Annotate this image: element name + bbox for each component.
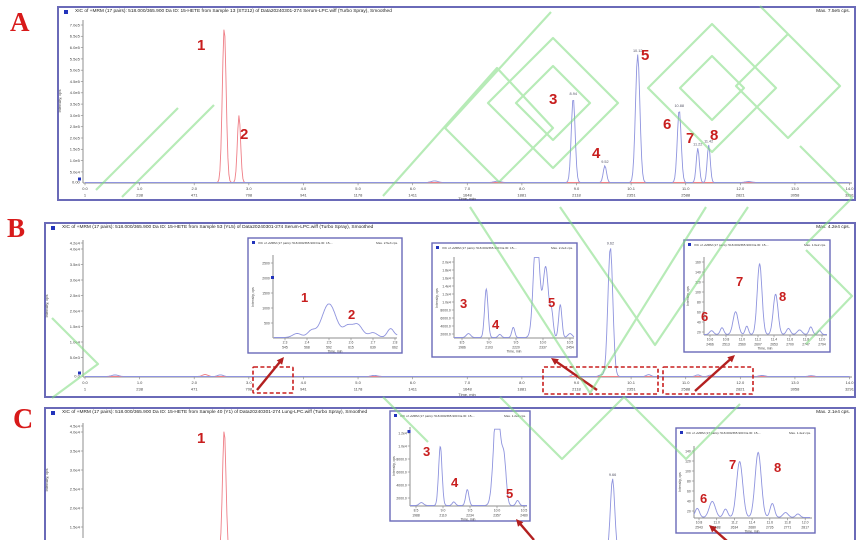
- peak-number: 7: [686, 130, 694, 147]
- inset-window-icon: [688, 243, 691, 246]
- x-tick-time-label: 3.0: [246, 186, 252, 191]
- x-tick-scan-label: 568: [304, 345, 310, 349]
- inset-max-label: Max. 1.2e4 cps.: [504, 414, 526, 418]
- x-tick-time-label: 11.8: [803, 337, 809, 341]
- y-tick-label: 6000.0: [396, 470, 406, 474]
- inset-window-icon: [252, 241, 255, 244]
- y-tick-label: 1.4e4: [442, 284, 451, 288]
- origin-marker: [78, 178, 81, 181]
- y-tick-label: 5.5e5: [70, 56, 81, 61]
- x-tick-scan-label: 2466: [706, 342, 714, 346]
- x-tick-time-label: 10.8: [696, 520, 703, 524]
- peak-rt-label: 10.88: [674, 104, 684, 108]
- x-tick-time-label: 5.0: [355, 186, 361, 191]
- y-tick-label: 3.0e4: [70, 467, 81, 472]
- x-tick-scan-label: 1411: [408, 386, 417, 391]
- x-tick-time-label: 2.0: [191, 380, 197, 385]
- x-tick-time-label: 8.0: [519, 380, 525, 385]
- inset-max-label: Max. 1.4e2 cps.: [789, 431, 811, 435]
- x-tick-time-label: 13.0: [791, 186, 800, 191]
- x-tick-time-label: 11.4: [771, 337, 777, 341]
- inset-title: XIC of +MRM (17 pairs): 518.000/365.900 …: [258, 241, 333, 245]
- x-tick-scan-label: 1988: [412, 513, 420, 517]
- y-tick-label: 1.2e4: [442, 292, 451, 296]
- x-tick-scan-label: 2357: [493, 513, 501, 517]
- x-tick-scan-label: 2337: [539, 345, 547, 349]
- zoom-arrow-line: [257, 359, 282, 390]
- y-axis-title: Intensity, cps: [44, 468, 49, 491]
- x-tick-scan-label: 1: [84, 192, 87, 197]
- y-tick-label: 2000: [262, 276, 270, 280]
- inset-window-icon: [394, 414, 397, 417]
- y-axis-title: Intensity, cps: [678, 472, 682, 492]
- origin-marker: [271, 276, 274, 279]
- peak-number: 6: [663, 116, 671, 133]
- y-tick-label: 120: [695, 280, 701, 284]
- x-tick-scan-label: 639: [370, 345, 376, 349]
- peak-number: 3: [549, 91, 557, 108]
- x-tick-scan-label: 1648: [463, 386, 473, 391]
- peak-number: 8: [779, 289, 786, 304]
- y-tick-label: 4000.0: [440, 324, 450, 328]
- x-tick-scan-label: 1: [84, 386, 87, 391]
- y-axis-title: Intensity, cps: [251, 287, 255, 307]
- inset-title: XIC of +MRM (17 pairs): 518.000/365.900 …: [694, 243, 769, 247]
- x-tick-time-label: 4.0: [301, 186, 307, 191]
- x-tick-time-label: 8.0: [519, 186, 525, 191]
- y-tick-label: 1.5e4: [70, 524, 81, 529]
- y-tick-label: 2.0e4: [70, 308, 81, 313]
- peak-rt-label: 9.66: [609, 473, 616, 477]
- y-tick-label: 6.0e5: [70, 45, 81, 50]
- x-tick-time-label: 8.5: [460, 340, 465, 344]
- peak-number: 4: [492, 317, 500, 332]
- x-tick-scan-label: 2118: [572, 386, 581, 391]
- y-tick-label: 5.0e5: [70, 68, 81, 73]
- inset-window-icon: [680, 431, 683, 434]
- inset-title: XIC of +MRM (17 pairs): 518.000/365.900 …: [400, 414, 475, 418]
- peak-number: 1: [301, 290, 308, 305]
- peak-number: 5: [641, 47, 649, 64]
- x-tick-scan-label: 1881: [517, 386, 527, 391]
- x-tick-time-label: 12.0: [736, 380, 745, 385]
- y-tick-label: 1.0e4: [398, 444, 407, 448]
- inset-max-label: Max. 1.6e2 cps.: [804, 243, 826, 247]
- peak-number: 1: [197, 430, 205, 447]
- y-axis-title: Intensity, cps: [44, 294, 49, 317]
- inset-window-icon: [436, 246, 439, 249]
- x-tick-time-label: 5.0: [355, 380, 361, 385]
- x-axis-title: Time, min: [328, 349, 343, 353]
- x-tick-time-label: 9.5: [468, 508, 473, 512]
- x-tick-time-label: 12.0: [802, 520, 809, 524]
- origin-marker: [408, 430, 411, 433]
- x-tick-time-label: 14.0: [846, 380, 855, 385]
- chromatogram-graphics-layer: 7.0e56.5e56.0e55.5e55.0e54.5e54.0e53.5e5…: [0, 0, 858, 540]
- peak-number: 7: [736, 274, 743, 289]
- x-tick-scan-label: 2351: [627, 386, 637, 391]
- x-tick-time-label: 12.0: [819, 337, 826, 341]
- x-axis-title: Time, min: [745, 529, 760, 533]
- x-tick-time-label: 11.4: [749, 520, 755, 524]
- x-tick-scan-label: 2747: [802, 342, 810, 346]
- y-tick-label: 6000.0: [440, 316, 450, 320]
- peak-rt-label: 11.22: [693, 143, 702, 147]
- x-tick-scan-label: 615: [348, 345, 354, 349]
- y-tick-label: 100: [685, 469, 691, 473]
- x-axis-title: Time, min: [758, 347, 773, 351]
- x-tick-time-label: 10.8: [723, 337, 730, 341]
- x-tick-scan-label: 2794: [818, 342, 826, 346]
- y-tick-label: 3.0e5: [70, 113, 81, 118]
- peak-number: 3: [423, 444, 430, 459]
- x-tick-time-label: 11.6: [767, 520, 773, 524]
- y-tick-label: 2000.0: [396, 496, 406, 500]
- x-tick-scan-label: 941: [300, 192, 307, 197]
- zoom-region-box: [543, 367, 658, 394]
- origin-marker: [78, 372, 81, 375]
- panel-b-letter: B: [7, 213, 25, 244]
- zoom-arrow-line: [695, 357, 733, 391]
- y-tick-label: 60: [687, 489, 691, 493]
- peak-number: 5: [506, 486, 513, 501]
- x-tick-scan-label: 2351: [627, 192, 637, 197]
- x-tick-time-label: 2.4: [305, 340, 310, 344]
- x-tick-time-label: 2.0: [191, 186, 197, 191]
- x-tick-scan-label: 2454: [566, 345, 574, 349]
- x-tick-scan-label: 2700: [786, 342, 794, 346]
- x-tick-scan-label: 2821: [736, 386, 746, 391]
- y-tick-label: 1.5e5: [70, 147, 81, 152]
- x-tick-scan-label: 238: [136, 386, 143, 391]
- y-tick-label: 20: [697, 330, 701, 334]
- y-tick-label: 4.2e4: [70, 240, 81, 245]
- x-tick-time-label: 0.0: [82, 380, 88, 385]
- y-tick-label: 3.5e4: [70, 448, 81, 453]
- y-tick-label: 2.0e4: [70, 505, 81, 510]
- y-tick-label: 2.5e4: [70, 486, 81, 491]
- x-tick-time-label: 10.0: [540, 340, 547, 344]
- y-tick-label: 1.0e4: [442, 300, 451, 304]
- peak-rt-label: 8.94: [570, 92, 577, 96]
- inset-window: [676, 428, 815, 533]
- x-tick-time-label: 2.5: [327, 340, 332, 344]
- y-tick-label: 4000.0: [396, 483, 406, 487]
- y-axis-title: Intensity, cps: [435, 288, 439, 308]
- panel-a-letter: A: [10, 7, 30, 38]
- y-tick-label: 500: [264, 321, 270, 325]
- peak-number: 2: [348, 307, 355, 322]
- x-tick-time-label: 7.0: [464, 380, 470, 385]
- x-tick-time-label: 11.0: [682, 186, 690, 191]
- y-tick-label: 1.5e4: [70, 324, 81, 329]
- x-tick-time-label: 10.1: [627, 380, 636, 385]
- x-tick-scan-label: 2110: [439, 513, 446, 517]
- peak-number: 4: [451, 475, 459, 490]
- y-tick-label: 5.0e4: [70, 169, 81, 174]
- y-axis-title: Intensity, cps: [392, 456, 396, 476]
- x-axis-title: Time, min: [458, 392, 475, 397]
- inset-window: [390, 411, 530, 521]
- x-tick-time-label: 4.0: [301, 380, 307, 385]
- x-tick-scan-label: 2560: [738, 342, 746, 346]
- peak-number: 1: [197, 37, 205, 54]
- y-tick-label: 3.0e4: [70, 277, 81, 282]
- x-tick-scan-label: 3291: [845, 192, 855, 197]
- x-axis-title: Time, min: [461, 517, 476, 521]
- x-tick-time-label: 11.0: [739, 337, 745, 341]
- x-tick-time-label: 6.0: [410, 186, 416, 191]
- peak-number: 3: [460, 296, 467, 311]
- x-tick-time-label: 1.0: [137, 186, 143, 191]
- y-tick-label: 140: [685, 449, 691, 453]
- x-tick-time-label: 1.0: [137, 380, 143, 385]
- x-tick-time-label: 11.0: [682, 380, 690, 385]
- x-tick-scan-label: 2588: [681, 386, 691, 391]
- x-tick-scan-label: 2817: [801, 525, 809, 529]
- x-tick-time-label: 2.6: [349, 340, 354, 344]
- y-tick-label: 1.0e5: [70, 158, 81, 163]
- x-axis-title: Time, min: [507, 349, 522, 353]
- x-tick-time-label: 6.0: [410, 380, 416, 385]
- trace-blue: [85, 55, 850, 183]
- y-tick-label: 7.0e5: [70, 22, 81, 27]
- y-tick-label: 1000: [262, 306, 270, 310]
- y-tick-label: 8000.0: [440, 308, 450, 312]
- y-tick-label: 2.0e4: [442, 260, 451, 264]
- y-tick-label: 2.0e5: [70, 135, 81, 140]
- x-tick-time-label: 10.0: [494, 508, 501, 512]
- x-tick-scan-label: 2103: [485, 345, 493, 349]
- x-tick-scan-label: 238: [136, 192, 143, 197]
- x-tick-scan-label: 2588: [681, 192, 691, 197]
- y-tick-label: 160: [695, 260, 701, 264]
- y-tick-label: 3.5e4: [70, 262, 81, 267]
- inset-title: XIC of +MRM (17 pairs): 518.000/365.900 …: [686, 431, 761, 435]
- x-tick-scan-label: 2118: [572, 192, 581, 197]
- x-tick-scan-label: 2771: [784, 525, 792, 529]
- x-tick-scan-label: 1986: [458, 345, 466, 349]
- x-tick-time-label: 11.0: [714, 520, 720, 524]
- x-tick-time-label: 9.0: [574, 186, 580, 191]
- x-tick-scan-label: 662: [392, 345, 398, 349]
- x-tick-time-label: 2.3: [283, 340, 288, 344]
- peak-number: 7: [729, 457, 736, 472]
- x-tick-time-label: 11.8: [784, 520, 790, 524]
- x-tick-scan-label: 1411: [408, 192, 417, 197]
- y-tick-label: 2.5e5: [70, 124, 81, 129]
- x-tick-time-label: 9.0: [574, 380, 580, 385]
- x-tick-scan-label: 2513: [722, 342, 730, 346]
- x-tick-scan-label: 941: [300, 386, 307, 391]
- y-tick-label: 4.0e4: [70, 246, 81, 251]
- x-tick-scan-label: 2634: [731, 525, 739, 529]
- x-tick-time-label: 0.0: [82, 186, 88, 191]
- peak-rt-label: 9.52: [601, 160, 608, 164]
- x-tick-scan-label: 2543: [695, 525, 703, 529]
- y-tick-label: 4.5e4: [70, 423, 81, 428]
- x-tick-time-label: 11.2: [755, 337, 761, 341]
- x-tick-scan-label: 2726: [766, 525, 774, 529]
- x-tick-time-label: 2.8: [393, 340, 398, 344]
- y-tick-label: 80: [697, 300, 701, 304]
- x-tick-time-label: 14.0: [846, 186, 855, 191]
- x-tick-time-label: 3.0: [246, 380, 252, 385]
- x-tick-time-label: 13.0: [791, 380, 800, 385]
- x-tick-scan-label: 708: [245, 386, 252, 391]
- y-tick-label: 4.0e5: [70, 90, 81, 95]
- x-tick-scan-label: 1178: [354, 386, 363, 391]
- x-tick-time-label: 11.2: [731, 520, 737, 524]
- x-tick-scan-label: 2821: [736, 192, 746, 197]
- x-tick-scan-label: 471: [191, 192, 198, 197]
- inset-max-label: Max. 2.2e4 cps.: [551, 246, 573, 250]
- y-tick-label: 1.0e4: [70, 339, 81, 344]
- x-tick-scan-label: 3058: [790, 386, 800, 391]
- y-axis-title: Intensity, cps: [57, 89, 62, 112]
- y-tick-label: 20: [687, 509, 691, 513]
- x-tick-time-label: 8.5: [414, 508, 419, 512]
- y-tick-label: 8000.0: [396, 457, 406, 461]
- x-tick-time-label: 11.6: [787, 337, 793, 341]
- inset-max-label: Max. 2.5e3 cps.: [376, 241, 398, 245]
- x-tick-time-label: 9.0: [441, 508, 446, 512]
- x-tick-scan-label: 2480: [520, 513, 528, 517]
- peak-number: 4: [592, 145, 601, 162]
- y-tick-label: 1.8e4: [442, 268, 451, 272]
- y-tick-label: 120: [685, 459, 691, 463]
- peak-number: 6: [700, 491, 707, 506]
- x-tick-scan-label: 3058: [790, 192, 800, 197]
- panel-c-letter: C: [13, 404, 33, 436]
- y-tick-label: 3.5e5: [70, 102, 81, 107]
- x-tick-time-label: 9.5: [514, 340, 519, 344]
- x-tick-scan-label: 1178: [354, 192, 363, 197]
- inset-title: XIC of +MRM (17 pairs): 518.000/365.900 …: [442, 246, 517, 250]
- figure-root: XIC of +MRM (17 pairs): 518.000/365.900 …: [0, 0, 858, 540]
- x-tick-scan-label: 3291: [845, 386, 855, 391]
- peak-rt-label: 9.62: [607, 242, 614, 246]
- x-tick-time-label: 12.0: [736, 186, 745, 191]
- peak-number: 6: [701, 309, 708, 324]
- x-tick-scan-label: 471: [191, 386, 198, 391]
- y-tick-label: 140: [695, 270, 701, 274]
- y-tick-label: 2500: [262, 261, 270, 265]
- y-tick-label: 4.0e4: [70, 429, 81, 434]
- y-tick-label: 40: [687, 499, 691, 503]
- x-tick-time-label: 2.7: [371, 340, 376, 344]
- x-tick-scan-label: 1881: [517, 192, 527, 197]
- y-tick-label: 100: [695, 290, 701, 294]
- peak-number: 2: [240, 126, 248, 143]
- y-tick-label: 1500: [262, 291, 270, 295]
- y-tick-label: 2.5e4: [70, 293, 81, 298]
- x-axis-title: Time, min: [458, 196, 475, 201]
- peak-number: 5: [548, 295, 555, 310]
- peak-number: 8: [710, 127, 718, 144]
- x-tick-time-label: 7.0: [464, 186, 470, 191]
- y-tick-label: 80: [687, 479, 691, 483]
- y-tick-label: 6.5e5: [70, 34, 81, 39]
- x-tick-scan-label: 708: [245, 192, 252, 197]
- x-tick-time-label: 10.5: [567, 340, 574, 344]
- x-tick-time-label: 10.6: [707, 337, 714, 341]
- y-tick-label: 1.2e4: [398, 431, 407, 435]
- y-tick-label: 5.0e3: [70, 355, 81, 360]
- x-tick-time-label: 10.1: [627, 186, 636, 191]
- y-tick-label: 4.5e5: [70, 79, 81, 84]
- x-tick-scan-label: 545: [282, 345, 288, 349]
- y-tick-label: 2000.0: [440, 332, 450, 336]
- y-tick-label: 1.6e4: [442, 276, 451, 280]
- peak-number: 8: [774, 460, 781, 475]
- y-axis-title: Intensity, cps: [686, 286, 690, 306]
- x-tick-time-label: 10.5: [521, 508, 528, 512]
- x-tick-time-label: 9.0: [487, 340, 492, 344]
